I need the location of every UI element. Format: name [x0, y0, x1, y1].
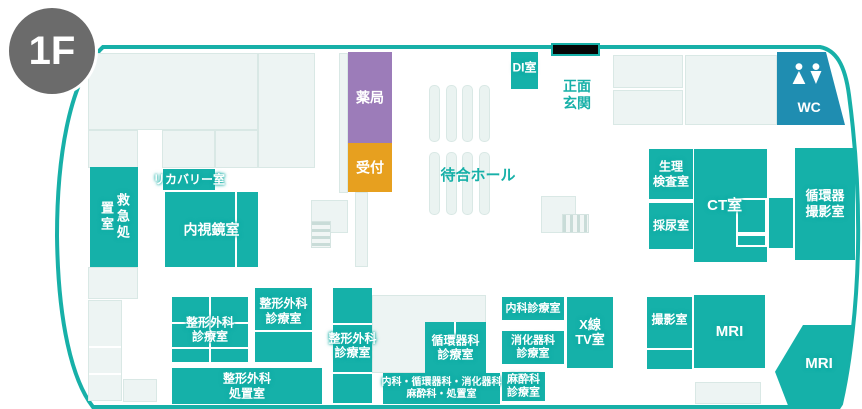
room-cardio-imaging: 循環器 撮影室 — [795, 148, 855, 260]
room-subdivision — [736, 234, 767, 247]
room-multi-treatment: 内科・循環器科・消化器科 麻酔科・処置室 — [383, 373, 500, 404]
room-mri: MRI — [694, 295, 765, 368]
room-ortho-clinic-a: 整形外科 診療室 — [172, 297, 248, 362]
room-cardiology-clinic: 循環器科 診療室 — [425, 322, 486, 373]
room-endoscopy: 内視鏡室 — [165, 192, 258, 267]
bench — [429, 85, 440, 142]
room-gastro-clinic: 消化器科 診療室 — [502, 331, 564, 364]
corridor-strip — [355, 192, 368, 267]
utility-room — [215, 130, 258, 168]
waiting-hall-label: 待合ホール — [440, 167, 515, 185]
staircase-west-steps — [311, 221, 331, 248]
room-urine-collection: 採尿室 — [649, 203, 693, 249]
room-label: 内視鏡室 — [184, 221, 240, 238]
room-label: 循環器科 診療室 — [431, 333, 479, 362]
room-label: 整形外科 処置室 — [223, 371, 271, 400]
room-label: 内科診療室 — [506, 302, 561, 315]
room-di: DI室 — [511, 52, 538, 89]
room-pharmacy: 薬局 — [348, 52, 392, 143]
room-label: 整形外科 診療室 — [328, 331, 376, 360]
room-label: 撮影室 — [651, 313, 687, 328]
bench — [429, 152, 440, 215]
bench — [446, 85, 457, 142]
room-label: リカバリー室 — [153, 172, 225, 187]
room-divider — [172, 347, 248, 349]
room-ct: CT室 — [694, 149, 767, 262]
utility-room — [123, 379, 157, 402]
room-label: 整形外科 診療室 — [259, 296, 307, 325]
room-label: 受付 — [356, 159, 384, 176]
room-label: 採尿室 — [653, 219, 689, 234]
room-label: 薬局 — [356, 89, 384, 106]
utility-room — [685, 55, 777, 125]
utility-room — [88, 130, 138, 168]
room-unlabeled — [769, 198, 793, 248]
bench — [462, 85, 473, 142]
utility-room — [613, 55, 683, 88]
utility-room — [162, 130, 215, 168]
floor-badge-1f[interactable]: 1F — [6, 5, 98, 97]
room-anesthesia-clinic: 麻酔科 診療室 — [502, 372, 545, 401]
room-ortho-clinic-b: 整形外科 診療室 — [255, 288, 312, 362]
room-emergency-treatment: 救急処置室 — [90, 167, 138, 267]
room-label: 循環器 撮影室 — [805, 188, 844, 220]
room-label: 生理 検査室 — [653, 159, 689, 188]
room-imaging: 撮影室 — [647, 297, 692, 369]
utility-room — [695, 382, 761, 404]
restroom-icons — [789, 63, 827, 87]
room-label: WC — [797, 99, 820, 115]
bench — [479, 85, 490, 142]
utility-room — [258, 53, 315, 168]
room-divider — [255, 330, 312, 332]
entrance-door-mark — [551, 43, 600, 56]
utility-room — [88, 267, 138, 299]
room-label: CT室 — [707, 196, 742, 214]
room-divider — [89, 346, 121, 348]
room-divider — [333, 372, 372, 374]
room-divider — [647, 348, 692, 350]
room-recovery: リカバリー室 — [163, 169, 215, 190]
room-label: 救急処置室 — [98, 192, 130, 242]
room-label: 整形外科 診療室 — [186, 315, 234, 344]
floor-map-1f: 待合ホール 正面 玄関 薬局 受付 DI室 WC 救急処置室 リカバリー室 内視… — [0, 0, 862, 409]
room-label: 麻酔科 診療室 — [507, 373, 540, 400]
room-physiology-lab: 生理 検査室 — [649, 149, 693, 199]
room-label: 消化器科 診療室 — [511, 334, 555, 361]
room-ortho-treatment: 整形外科 処置室 — [172, 368, 322, 404]
utility-room — [613, 90, 683, 125]
room-label: DI室 — [512, 61, 536, 76]
main-entrance-label: 正面 玄関 — [563, 78, 591, 112]
utility-room — [88, 53, 258, 130]
room-internal-clinic: 内科診療室 — [502, 297, 564, 320]
room-divider — [333, 323, 372, 325]
room-label: X線 TV室 — [575, 317, 605, 349]
staircase-east-steps — [562, 214, 589, 233]
room-ortho-clinic-c: 整形外科 診療室 — [333, 288, 372, 403]
floor-badge-label: 1F — [29, 29, 76, 74]
utility-room — [88, 300, 122, 401]
room-reception: 受付 — [348, 143, 392, 192]
room-label: 内科・循環器科・消化器科 麻酔科・処置室 — [382, 376, 502, 400]
room-label: MRI — [805, 355, 833, 373]
room-xray-tv: X線 TV室 — [567, 297, 613, 368]
corridor-strip — [339, 53, 348, 193]
room-divider — [89, 373, 121, 375]
room-label: MRI — [716, 322, 744, 340]
